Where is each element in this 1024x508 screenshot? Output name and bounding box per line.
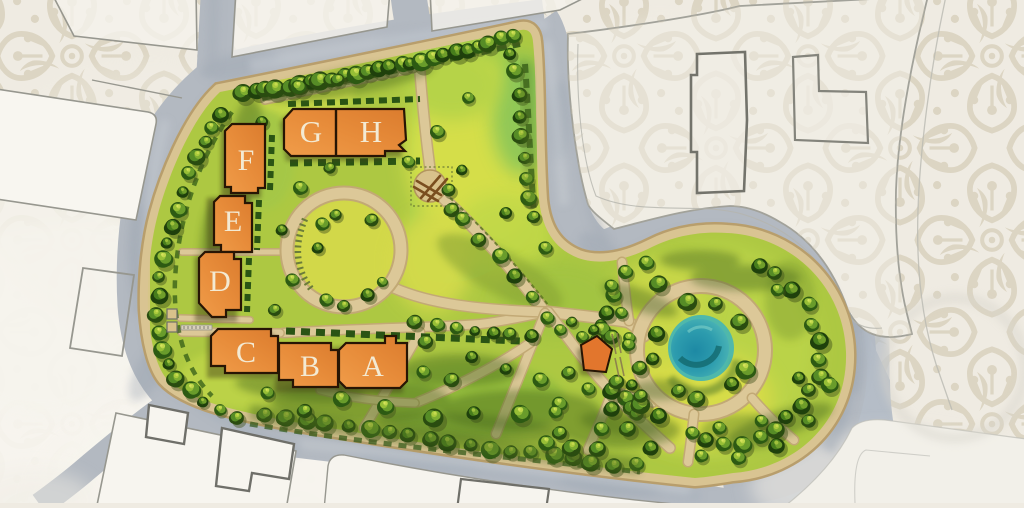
svg-text:C: C [236, 336, 256, 369]
svg-text:D: D [209, 265, 231, 298]
svg-text:E: E [224, 205, 242, 238]
svg-text:F: F [238, 144, 255, 177]
svg-text:H: H [360, 114, 382, 149]
svg-text:B: B [300, 350, 320, 383]
svg-text:G: G [300, 114, 322, 149]
svg-text:A: A [362, 350, 384, 383]
